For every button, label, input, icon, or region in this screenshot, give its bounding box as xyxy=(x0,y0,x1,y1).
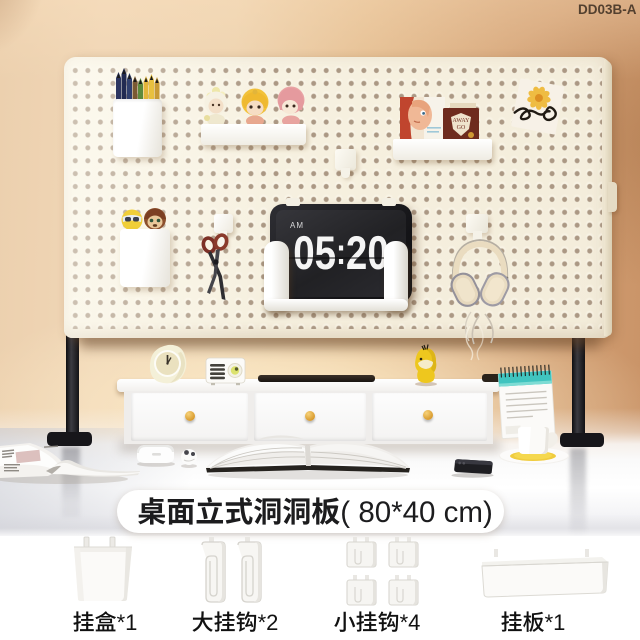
svg-text:AWAY: AWAY xyxy=(453,118,471,124)
svg-text:*4: *4 xyxy=(400,610,421,635)
svg-text:GO: GO xyxy=(457,125,466,131)
svg-text:( 80*40 cm): ( 80*40 cm) xyxy=(340,496,492,529)
svg-text:*1: *1 xyxy=(117,610,138,635)
svg-text:*1: *1 xyxy=(545,610,566,635)
svg-text:*2: *2 xyxy=(258,610,279,635)
